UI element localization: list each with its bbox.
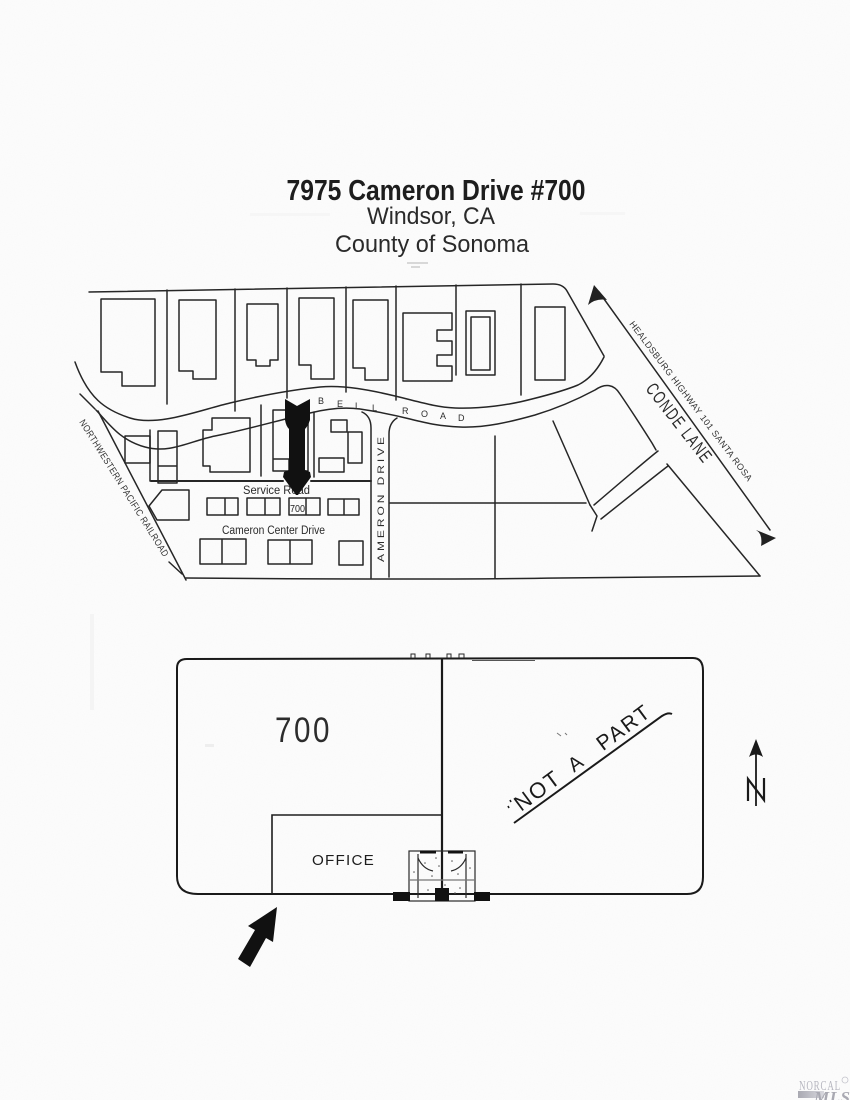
svg-text:County of Sonoma: County of Sonoma: [335, 231, 530, 258]
svg-text:700: 700: [290, 504, 305, 515]
svg-text:Cameron Center Drive: Cameron Center Drive: [222, 525, 325, 537]
svg-text:Windsor, CA: Windsor, CA: [367, 203, 495, 230]
svg-text:A: A: [440, 411, 446, 421]
svg-text:E: E: [337, 399, 343, 409]
svg-text:L: L: [372, 403, 377, 413]
svg-text:R: R: [402, 406, 409, 416]
svg-text:D: D: [458, 413, 465, 423]
svg-text:O: O: [421, 409, 428, 419]
svg-text:B: B: [318, 396, 324, 406]
svg-text:L: L: [355, 401, 360, 411]
svg-text:OFFICE: OFFICE: [312, 852, 375, 869]
svg-text:700: 700: [275, 711, 332, 750]
svg-text:AMERON DRIVE: AMERON DRIVE: [376, 434, 386, 562]
svg-text:MLS: MLS: [813, 1088, 850, 1100]
